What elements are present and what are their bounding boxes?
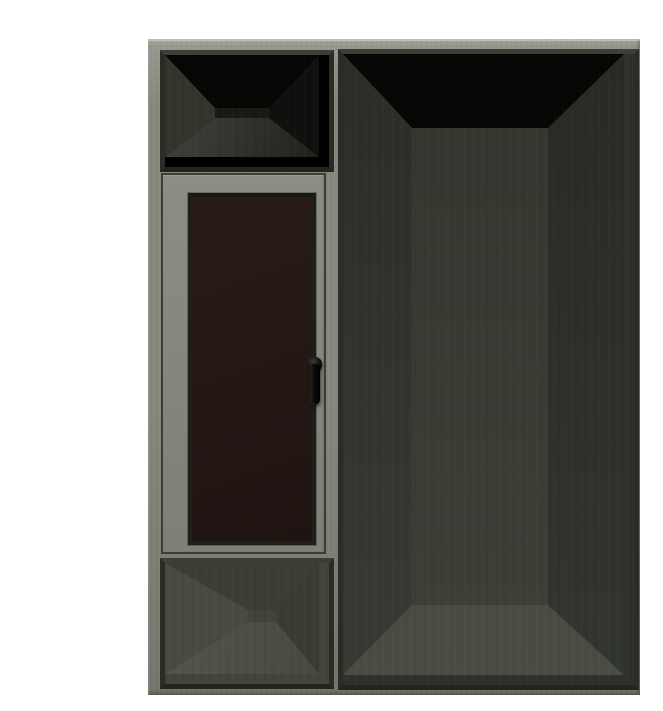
glass-panel xyxy=(192,197,312,541)
transom-opening-interior xyxy=(165,55,329,167)
bottom-opening xyxy=(160,558,334,689)
handle-grip xyxy=(310,364,320,405)
transom-opening xyxy=(160,50,334,172)
window-door-frame-unit xyxy=(148,39,640,695)
door-opening xyxy=(338,49,639,690)
glazed-sash xyxy=(163,175,324,552)
glazing-bead xyxy=(188,193,316,545)
door-opening-interior xyxy=(343,54,634,685)
product-render-canvas xyxy=(0,0,663,711)
bottom-opening-interior xyxy=(165,563,329,684)
window-handle xyxy=(308,357,323,406)
